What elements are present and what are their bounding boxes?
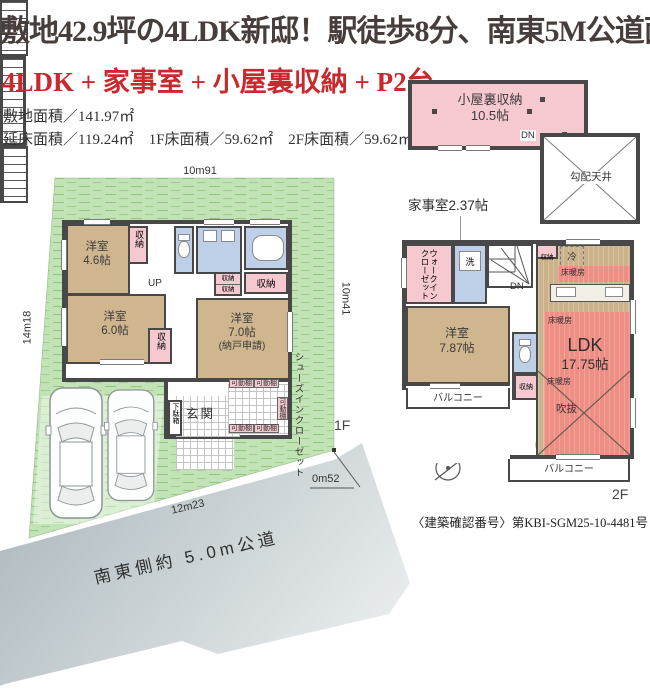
closet-label: 収納 (519, 384, 533, 391)
shelf-row: 可動棚可動棚 (229, 380, 279, 388)
toilet-icon (178, 234, 190, 241)
entrance-label: 玄関 (186, 407, 215, 422)
sloped-ceiling-label: 勾配天井 (568, 171, 614, 184)
floor2-tag: 2F (612, 486, 628, 503)
toilet-bowl-icon (178, 241, 190, 258)
room-name: LDK (540, 334, 630, 357)
stairs-dn-label: DN (510, 281, 524, 292)
shoe-cabinet-label: 下駄箱 (171, 403, 179, 424)
closet-1f-a: 収納 (128, 226, 148, 264)
window (630, 398, 636, 428)
room-size: 4.6帖 (66, 254, 128, 268)
balcony-label: バルコニー (544, 464, 594, 475)
window (556, 454, 600, 460)
kitchen-counter (550, 284, 630, 302)
dim-right: 10m41 (338, 277, 351, 321)
shelf-label-vertical: 可動棚 (277, 397, 288, 420)
closet-label: 収納 (216, 274, 240, 285)
balcony-left: バルコニー (406, 388, 510, 409)
utility-laundry-room: 洗 (453, 244, 487, 304)
floor-heating-label: 床暖房 (548, 316, 572, 326)
window (287, 312, 293, 352)
toilet-bowl-icon (519, 346, 531, 363)
window (430, 383, 460, 389)
room-bedroom-7-0-label: 洋室 7.0帖 (納戸申請) (196, 312, 288, 353)
fridge-label: 冷 (567, 252, 577, 263)
utility-leader-line (460, 216, 461, 242)
room-bedroom-7-87-label: 洋室 7.87帖 (406, 326, 508, 356)
floor-heating-label: 床暖房 (561, 268, 585, 278)
flyer-page: 敷地42.9坪の4LDK新邸！駅徒歩8分、南東5M公道面！ 4LDK + 家事室… (0, 0, 650, 698)
sink-icon (221, 230, 235, 242)
window (100, 359, 144, 365)
window (630, 300, 636, 334)
toilet-icon (519, 339, 531, 346)
room-name: 洋室 (196, 312, 288, 326)
sink-icon (203, 230, 217, 242)
room-name: 小屋裏収納 (410, 92, 570, 108)
closet-label: 収納 (155, 332, 165, 350)
window (401, 258, 407, 288)
void-x-lines (538, 371, 630, 455)
building-confirmation-number: 〈建築確認番号〉第KBI-SGM25-10-4481号 (398, 516, 648, 531)
post-marker (432, 109, 437, 114)
shelf-row: 可動棚可動棚 (229, 425, 279, 433)
bathtub-icon (252, 235, 284, 261)
closet-1f-pair: 収納 収納 (214, 272, 242, 296)
void-label: 吹抜 (556, 403, 577, 416)
post-marker (540, 97, 545, 102)
balcony-label: バルコニー (433, 393, 483, 404)
kitchen-sink-icon (556, 287, 576, 297)
washroom-1f (196, 226, 242, 274)
wic-label-line1: ウォークイン (429, 249, 438, 302)
window (250, 219, 280, 225)
lawn-corner-marker (332, 448, 336, 452)
washing-machine-icon: 洗 (459, 251, 481, 271)
closet-label: 収納 (541, 254, 554, 261)
closet-label: 収納 (216, 285, 240, 295)
window (61, 308, 67, 346)
room-name: 洋室 (66, 310, 164, 324)
window (566, 239, 600, 245)
room-ldk-label: LDK 17.75帖 (540, 334, 630, 373)
bathroom-1f (244, 226, 288, 270)
window (61, 240, 67, 270)
dim-top: 10m91 (170, 165, 230, 178)
utility-room-label: 家事室2.37帖 (408, 198, 488, 214)
closet-label: 収納 (133, 230, 143, 248)
window (438, 145, 462, 151)
stove-icon (605, 287, 623, 297)
post-marker (527, 109, 532, 114)
car-icon (46, 388, 106, 518)
shoe-cabinet: 下駄箱 (168, 400, 182, 436)
room-note: (納戸申請) (196, 341, 288, 354)
wic-label-line2: クローゼット (421, 249, 430, 302)
laundry-label: 洗 (465, 257, 474, 267)
toilet-1f (174, 226, 194, 274)
room-size: 7.87帖 (406, 341, 508, 356)
floor1-tag: 1F (334, 417, 350, 434)
stairs-dn-label: DN (520, 130, 536, 141)
window (84, 219, 110, 225)
room-size: 7.0帖 (196, 326, 288, 340)
shelf-label: 可動棚 (254, 379, 279, 388)
walkin-closet: ウォークイン クローゼット (405, 244, 453, 304)
balcony-bottom: バルコニー (508, 459, 630, 482)
closet-label: 収納 (256, 279, 275, 290)
shelf-label: 可動棚 (229, 379, 254, 388)
room-bedroom-4-6-label: 洋室 4.6帖 (66, 240, 128, 269)
shelf-label: 可動棚 (254, 424, 279, 433)
closet-1f-c: 収納 (148, 328, 172, 364)
stairs-up-label: UP (148, 278, 162, 290)
closet-2f-mid: 収納 (512, 374, 538, 400)
window (204, 219, 234, 225)
car-icon (104, 390, 157, 501)
toilet-2f (512, 332, 538, 374)
shelf-label: 可動棚 (229, 424, 254, 433)
room-name: 洋室 (66, 240, 128, 254)
shoes-closet-label: シューズインクローゼット (293, 352, 303, 478)
winder-stairs-lines (489, 246, 531, 286)
dim-corner: 0m52 (312, 473, 340, 486)
room-name: 洋室 (406, 326, 508, 341)
closet-2f-top: 収納 (536, 244, 558, 259)
dim-left: 14m18 (21, 306, 34, 350)
window (466, 145, 490, 151)
closet-1f-b: 収納 (244, 272, 288, 294)
porch-floor (176, 439, 234, 470)
